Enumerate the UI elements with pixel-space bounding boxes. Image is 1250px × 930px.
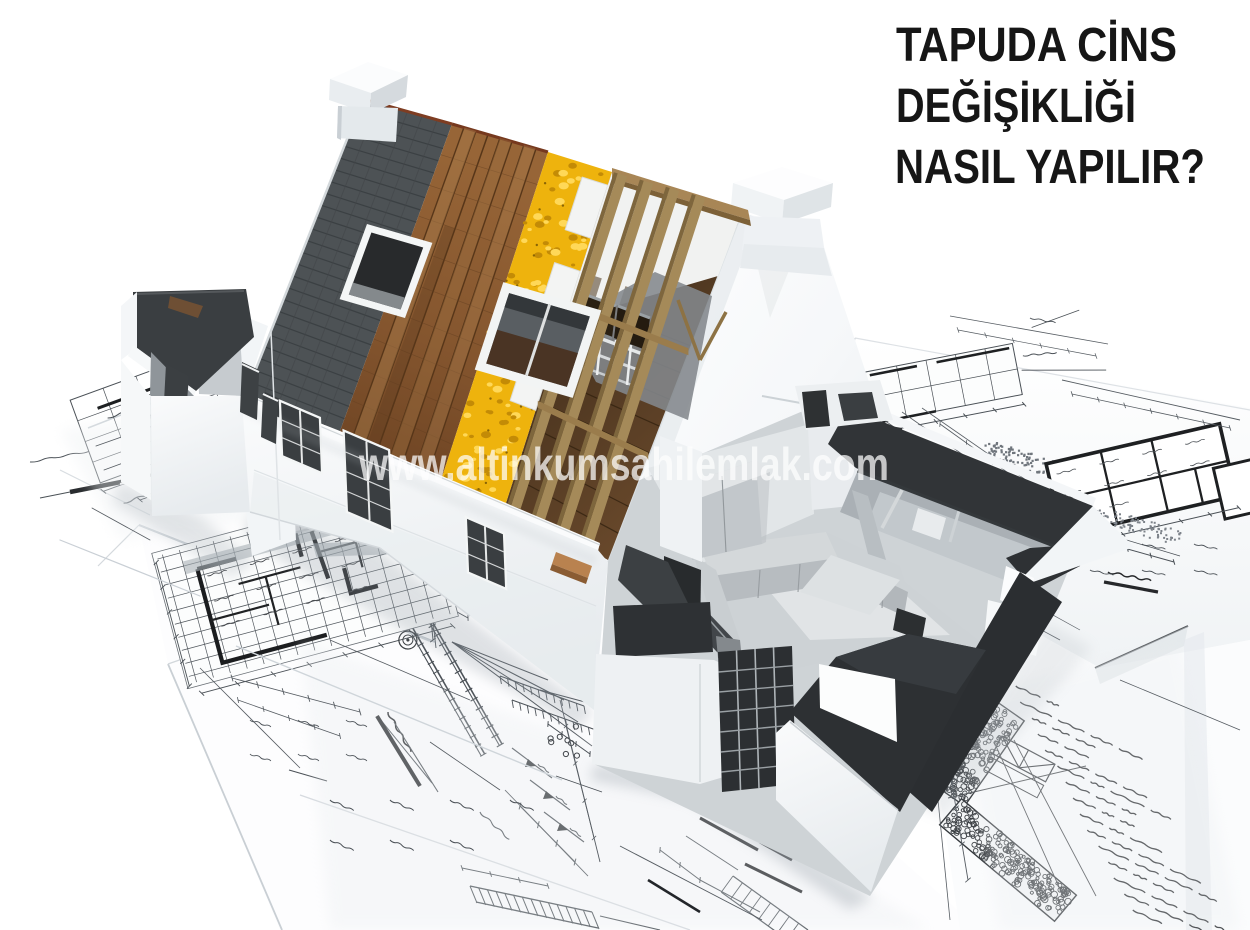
svg-text:NASIL YAPILIR?: NASIL YAPILIR? [895,140,1205,194]
svg-text:www.altinkumsahilemlak.com: www.altinkumsahilemlak.com [358,438,889,490]
svg-text:TAPUDA CİNS: TAPUDA CİNS [896,18,1177,72]
svg-text:DEĞİŞİKLİĞİ: DEĞİŞİKLİĞİ [896,79,1136,133]
